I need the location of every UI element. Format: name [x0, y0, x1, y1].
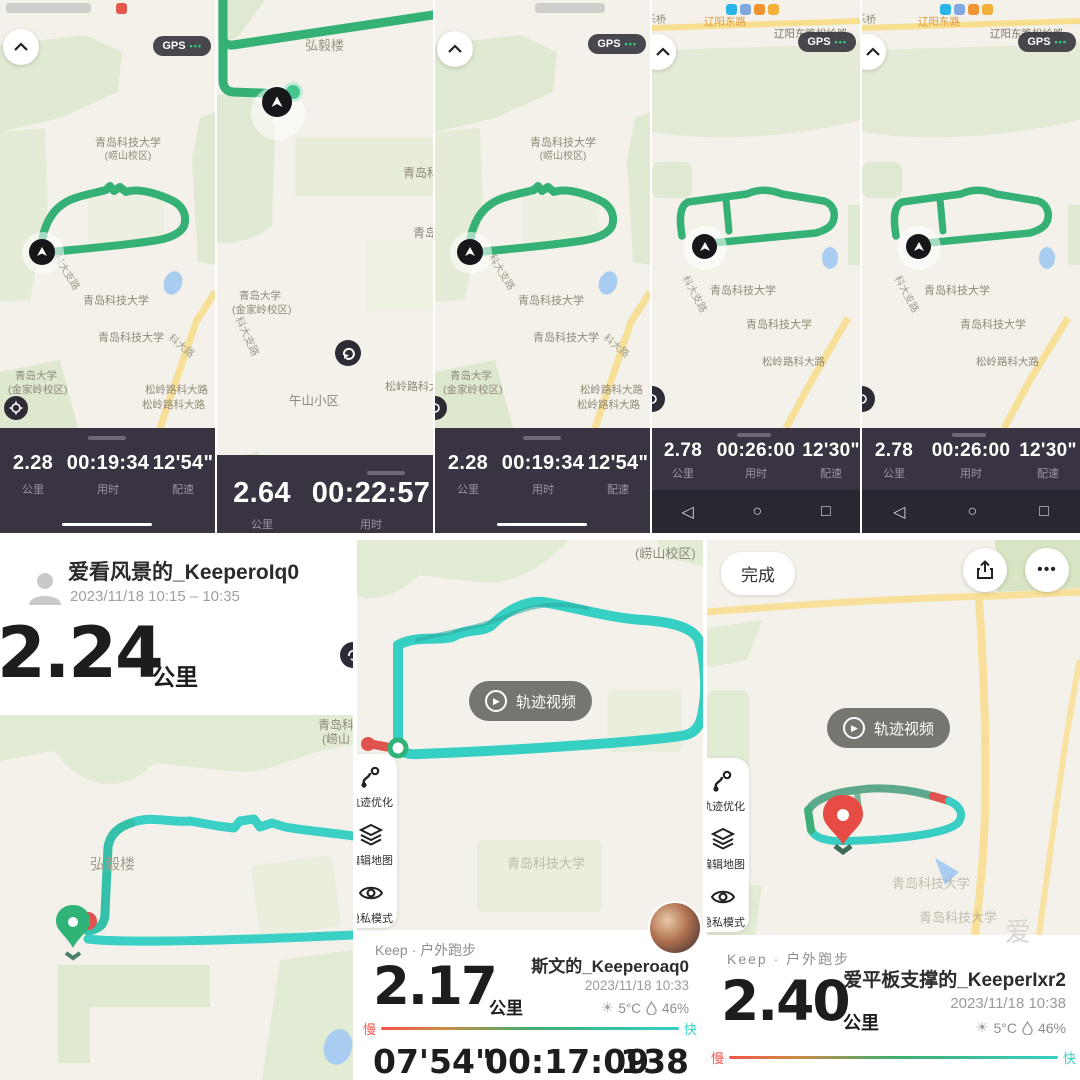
avg-pace-value: 07'54"	[373, 1042, 492, 1080]
user-avatar[interactable]	[648, 901, 702, 955]
location-arrow-marker	[29, 239, 55, 265]
distance-value: 2.40	[721, 969, 849, 1033]
recenter-button[interactable]	[335, 340, 361, 366]
map-label-campus: 青岛科技大学 (崂山校区)	[95, 136, 161, 163]
map-poi-icon	[982, 4, 993, 15]
map-label-university-a: 青岛科技大学	[83, 294, 149, 308]
temperature: 5°C	[618, 1001, 641, 1016]
route-icon	[358, 764, 384, 790]
route-optimize-label: 轨迹优化	[707, 798, 745, 814]
distance-label: 公里	[0, 481, 66, 497]
map-terrain	[0, 0, 215, 428]
route-icon	[710, 768, 736, 794]
summary-card: Keep · 户外跑步 2.40 公里 爱平板支撑的_KeeperIxr2 20…	[707, 935, 1080, 1080]
map-label-corner: (崂山校区)	[635, 546, 696, 563]
duration-value: 00:19:34	[58, 452, 158, 475]
datetime: 2023/11/18 10:38	[950, 995, 1066, 1012]
map-label-university-b: 青岛科技大学	[98, 331, 164, 345]
collapse-chevron-button[interactable]	[437, 31, 473, 67]
distance-unit: 公里	[843, 1009, 879, 1035]
navigation-arrow-icon	[270, 95, 284, 109]
location-arrow-marker	[692, 234, 717, 259]
duration-label: 用时	[493, 481, 593, 497]
map-label-qdu: 青岛大学	[450, 370, 492, 384]
edit-map-label: 编辑地图	[357, 852, 393, 868]
edit-map-button[interactable]: 编辑地图	[357, 822, 401, 868]
status-bar-blur	[6, 3, 91, 13]
compass-icon	[9, 401, 23, 415]
map-label-university-b: 青岛科技大学	[919, 910, 997, 927]
privacy-mode-label: 隐私模式	[707, 914, 745, 930]
humidity-drop-icon	[1022, 1021, 1033, 1035]
stat-duration: 00:19:34 用时	[493, 452, 593, 497]
map-label-qdu-campus: (金家岭校区)	[443, 384, 503, 398]
map-label-road-songling-b: 松岭路科大路	[142, 399, 205, 413]
edit-map-button[interactable]: 编辑地图	[707, 826, 753, 872]
map-label-corner-line2: (崂山	[322, 732, 350, 748]
distance-value: 2.28	[435, 452, 501, 475]
pace-label: 配速	[800, 465, 860, 481]
stats-panel: 2.64 公里 00:22:57 用时	[217, 455, 433, 533]
temperature: 5°C	[993, 1020, 1017, 1036]
map-poi-icon	[940, 4, 951, 15]
map-label-university: 青岛科技大学	[507, 856, 585, 873]
map-label-building: 弘毅楼	[305, 38, 344, 55]
humidity-drop-icon	[646, 1001, 657, 1015]
gps-label: GPS	[597, 38, 620, 50]
status-app-icon	[116, 3, 127, 14]
run-tracking-screen-1[interactable]: GPS ••• 青岛科技大学 (崂山校区) 青岛科技大学 青岛科技大学 青岛大学…	[0, 0, 215, 533]
gps-signal-badge: GPS •••	[798, 32, 856, 52]
duration-value: 00:22:57	[309, 477, 433, 510]
map-poi-icon	[754, 4, 765, 15]
stat-distance: 2.78 公里	[652, 440, 714, 481]
track-video-label: 轨迹视频	[874, 718, 934, 739]
stat-duration: 00:26:00 用时	[922, 440, 1020, 481]
map-label-university-b: 青岛科技大学	[533, 331, 599, 345]
run-tracking-screen-2[interactable]: 弘毅楼 青岛科技大 青岛大 青岛大学 (金家岭校区) 科大支路 午山小区 松岭路…	[217, 0, 433, 533]
chevron-up-icon	[865, 47, 881, 57]
chevron-up-icon	[13, 42, 29, 52]
more-options-button[interactable]: •••	[1025, 548, 1069, 592]
heart-rate-value: 138	[620, 1042, 689, 1080]
map-label-university-a: 青岛科技大学	[924, 284, 990, 298]
duration-value: 00:26:00	[708, 440, 804, 462]
nav-recent-icon[interactable]: □	[1039, 503, 1049, 521]
distance-value: 2.64	[217, 477, 307, 510]
map-poi-icon	[768, 4, 779, 15]
datetime: 2023/11/18 10:33	[585, 978, 689, 993]
map-poi-icon	[740, 4, 751, 15]
collapse-chevron-button[interactable]	[652, 34, 676, 70]
track-video-button[interactable]: ▶ 轨迹视频	[827, 708, 950, 748]
map-label-university-right: 青岛科技大	[403, 166, 433, 182]
gps-label: GPS	[162, 40, 185, 52]
stats-panel: 2.28 公里 00:19:34 用时 12'54" 配速	[0, 428, 215, 533]
distance-value: 2.24	[0, 612, 162, 694]
stat-pace: 12'30" 配速	[1016, 440, 1080, 481]
duration-label: 用时	[58, 481, 158, 497]
layers-icon	[710, 826, 736, 852]
humidity: 46%	[1038, 1020, 1066, 1036]
track-video-button[interactable]: ▶ 轨迹视频	[469, 681, 592, 721]
map-label-road-songling-a: 松岭路科大路	[145, 384, 208, 398]
map-label-campus-line1: 青岛科技大学	[95, 136, 161, 150]
duration-label: 用时	[309, 516, 433, 532]
nav-back-icon[interactable]: ◁	[681, 502, 693, 522]
nav-recent-icon[interactable]: □	[821, 503, 831, 521]
map-label-qdu: 青岛大学	[15, 370, 57, 384]
nav-home-icon[interactable]: ○	[752, 503, 762, 521]
location-arrow-marker	[262, 87, 292, 117]
nav-home-icon[interactable]: ○	[967, 503, 977, 521]
map-label-road-songling-b: 松岭路科大路	[577, 399, 640, 413]
run-tracking-screen-3[interactable]: GPS ••• 青岛科技大学 (崂山校区) 青岛科技大学 青岛科技大学 青岛大学…	[435, 0, 650, 533]
edit-map-label: 编辑地图	[707, 856, 745, 872]
map-terrain	[862, 0, 1080, 428]
route-map[interactable]: 弘毅楼 青岛科 (崂山	[0, 715, 353, 1080]
slow-label: 慢	[711, 1048, 724, 1067]
home-indicator	[62, 523, 152, 526]
pace-label: 配速	[150, 481, 215, 497]
map-label-university-cut: 青岛大	[413, 226, 433, 242]
distance-label: 公里	[435, 481, 501, 497]
map-label-road-kedazhilu: 科大支路	[891, 274, 921, 315]
duration-label: 用时	[922, 465, 1020, 481]
play-icon: ▶	[843, 717, 865, 739]
distance-label: 公里	[217, 516, 307, 532]
drag-handle[interactable]	[737, 433, 771, 437]
rotate-arrow-icon	[346, 648, 353, 662]
play-glyph: ▶	[493, 696, 500, 707]
map-label-university-a: 青岛科技大学	[710, 284, 776, 298]
status-bar-blur	[535, 3, 605, 13]
map-terrain	[652, 0, 860, 428]
sun-icon: ☀	[601, 1000, 613, 1016]
gps-signal-badge: GPS •••	[153, 36, 211, 56]
username: 爱平板支撑的_KeeperIxr2	[843, 965, 1066, 992]
nav-back-icon[interactable]: ◁	[893, 502, 905, 522]
play-icon: ▶	[485, 690, 507, 712]
chevron-up-icon	[447, 44, 463, 54]
distance-label: 公里	[652, 465, 714, 481]
chevron-up-icon	[655, 47, 671, 57]
duration-label: 用时	[708, 465, 804, 481]
pace-value: 12'30"	[1016, 440, 1080, 462]
map-poi-icon	[968, 4, 979, 15]
map-label-qdu: 青岛大学	[239, 290, 281, 304]
navigation-arrow-icon	[36, 246, 48, 258]
stats-panel: 2.28 公里 00:19:34 用时 12'54" 配速	[435, 428, 650, 533]
summary-card: Keep · 户外跑步 2.17 公里 斯文的_Keeperoaq0 2023/…	[357, 930, 703, 1080]
map-label-road-top: 辽阳东路	[918, 16, 960, 30]
navigation-arrow-icon	[464, 246, 476, 258]
app-activity-line: Keep · 户外跑步	[727, 949, 850, 969]
keep-run-collage: GPS ••• 青岛科技大学 (崂山校区) 青岛科技大学 青岛科技大学 青岛大学…	[0, 0, 1080, 1080]
distance-unit: 公里	[152, 658, 198, 692]
stat-distance: 2.78 公里	[862, 440, 926, 481]
pace-value: 12'54"	[150, 452, 215, 475]
map-label-building: 弘毅楼	[90, 855, 135, 875]
map-label-road-songling: 松岭路科大路	[762, 356, 825, 370]
map-label-campus-line2: (崂山校区)	[530, 150, 596, 163]
map-label-campus: 青岛科技大学 (崂山校区)	[530, 136, 596, 163]
gps-signal-badge: GPS •••	[588, 34, 646, 54]
distance-label: 公里	[862, 465, 926, 481]
person-avatar-icon	[25, 568, 65, 608]
map-label-university-b: 青岛科技大学	[746, 318, 812, 332]
compass-icon	[862, 392, 869, 406]
stat-distance: 2.64 公里	[217, 477, 307, 532]
map-terrain	[435, 0, 650, 428]
drag-handle[interactable]	[367, 471, 405, 475]
pace-gradient-bar	[729, 1056, 1058, 1059]
track-video-label: 轨迹视频	[516, 691, 576, 712]
pace-value: 12'54"	[585, 452, 650, 475]
collapse-chevron-button[interactable]	[3, 29, 39, 65]
map-label-left-road: 乐桥	[652, 14, 666, 27]
drag-handle[interactable]	[88, 436, 126, 440]
map-poi-icon	[954, 4, 965, 15]
map-label-road-kedalu: 科大路	[165, 332, 196, 361]
recenter-button[interactable]	[340, 642, 353, 668]
eye-icon	[710, 884, 736, 910]
map-label-road-songling-a: 松岭路科大路	[580, 384, 643, 398]
compass-icon	[435, 401, 442, 415]
map-label-road-songling: 松岭路科大路	[976, 356, 1039, 370]
map-terrain	[0, 715, 353, 1080]
map-label-university-a: 青岛科技大学	[892, 876, 970, 893]
stats-panel: 2.78 公里 00:26:00 用时 12'30" 配速	[652, 428, 860, 490]
collapse-chevron-button[interactable]	[862, 34, 886, 70]
weather-row: ☀ 5°C 46%	[601, 1000, 689, 1016]
distance-unit: 公里	[489, 994, 523, 1019]
map-label-road-top: 辽阳东路	[704, 16, 746, 30]
compass-button[interactable]	[4, 396, 28, 420]
map-label-left-road: 乐桥	[862, 14, 876, 27]
map-label-village: 午山小区	[289, 393, 339, 409]
stat-pace: 12'30" 配速	[800, 440, 860, 481]
fast-label: 快	[1063, 1048, 1076, 1067]
pace-value: 12'30"	[800, 440, 860, 462]
play-glyph: ▶	[851, 723, 858, 734]
map-label-road-kedazhilu: 科大支路	[679, 274, 709, 315]
pace-label: 配速	[585, 481, 650, 497]
run-tracking-screen-4[interactable]: 乐桥 辽阳东路 辽阳东路松岭路 GPS ••• 青岛科技大学 青岛科技大学 松岭…	[652, 0, 860, 533]
stat-duration: 00:22:57 用时	[309, 477, 433, 532]
rotate-arrow-icon	[340, 345, 356, 361]
gps-signal-dots: •••	[190, 42, 202, 51]
stat-distance: 2.28 公里	[0, 452, 66, 497]
username: 爱看风景的_KeeperoIq0	[68, 556, 299, 586]
pace-label: 配速	[1016, 465, 1080, 481]
map-poi-icon	[726, 4, 737, 15]
compass-button[interactable]	[435, 396, 447, 420]
watermark: 爱	[1005, 912, 1031, 949]
share-button[interactable]	[963, 548, 1007, 592]
android-nav-bar: ◁ ○ □	[652, 490, 860, 533]
done-button[interactable]: 完成	[721, 552, 795, 595]
android-nav-bar: ◁ ○ □	[862, 490, 1080, 533]
sun-icon: ☀	[976, 1019, 989, 1036]
location-arrow-marker	[457, 239, 483, 265]
stats-panel: 2.78 公里 00:26:00 用时 12'30" 配速	[862, 428, 1080, 490]
stat-duration: 00:19:34 用时	[58, 452, 158, 497]
stat-pace: 12'54" 配速	[150, 452, 215, 497]
home-indicator	[497, 523, 587, 526]
compass-button[interactable]	[862, 386, 875, 412]
gps-label: GPS	[807, 36, 830, 48]
distance-value: 2.17	[373, 956, 496, 1017]
humidity: 46%	[662, 1001, 689, 1016]
gps-signal-dots: •••	[625, 40, 637, 49]
map-label-road-songling: 松岭路科大路	[385, 380, 433, 394]
slow-label: 慢	[363, 1019, 376, 1038]
date-range: 2023/11/18 10:15 – 10:35	[70, 588, 240, 605]
pace-gradient-bar	[381, 1027, 679, 1030]
stat-pace: 12'54" 配速	[585, 452, 650, 497]
map-label-university-b: 青岛科技大学	[960, 318, 1026, 332]
done-label: 完成	[741, 566, 775, 585]
eye-icon	[358, 880, 384, 906]
map-label-campus-line1: 青岛科技大学	[530, 136, 596, 150]
gps-signal-dots: •••	[835, 38, 847, 47]
run-detail-screen-1[interactable]: (崂山校区) 青岛科技大学 ▶ 轨迹视频 轨迹优化 编辑地图 隐私模式 Keep…	[357, 540, 703, 1080]
gps-signal-dots: •••	[1055, 38, 1067, 47]
route-optimize-button[interactable]: 轨迹优化	[357, 764, 401, 810]
privacy-mode-label: 隐私模式	[357, 910, 393, 926]
share-icon	[975, 560, 995, 580]
privacy-mode-button[interactable]: 隐私模式	[357, 880, 401, 926]
run-tracking-screen-5[interactable]: 乐桥 辽阳东路 辽阳东路松岭路 GPS ••• 青岛科技大学 青岛科技大学 松岭…	[862, 0, 1080, 533]
location-arrow-marker	[906, 234, 931, 259]
username: 斯文的_Keeperoaq0	[531, 952, 689, 977]
stat-distance: 2.28 公里	[435, 452, 501, 497]
drag-handle[interactable]	[523, 436, 561, 440]
more-icon: •••	[1037, 561, 1057, 579]
navigation-arrow-icon	[699, 241, 711, 253]
run-detail-screen-2[interactable]: 完成 ••• ▶ 轨迹视频 轨迹优化 编辑地图 隐私模式 青岛科技大学 青岛科技…	[707, 540, 1080, 1080]
route-optimize-label: 轨迹优化	[357, 794, 393, 810]
distance-value: 2.78	[862, 440, 926, 462]
gps-signal-badge: GPS •••	[1018, 32, 1076, 52]
duration-value: 00:19:34	[493, 452, 593, 475]
route-optimize-button[interactable]: 轨迹优化	[707, 768, 753, 814]
layers-icon	[358, 822, 384, 848]
compass-button[interactable]	[652, 386, 665, 412]
stat-duration: 00:26:00 用时	[708, 440, 804, 481]
map-label-road-kedalu: 科大路	[600, 332, 631, 361]
privacy-mode-button[interactable]: 隐私模式	[707, 884, 753, 930]
map-label-university-a: 青岛科技大学	[518, 294, 584, 308]
fast-label: 快	[684, 1019, 697, 1038]
compass-icon	[652, 392, 659, 406]
duration-value: 00:26:00	[922, 440, 1020, 462]
map-label-campus-line2: (崂山校区)	[95, 150, 161, 163]
navigation-arrow-icon	[913, 241, 925, 253]
gps-label: GPS	[1027, 36, 1050, 48]
drag-handle[interactable]	[952, 433, 986, 437]
run-summary-card-1[interactable]: 爱看风景的_KeeperoIq0 2023/11/18 10:15 – 10:3…	[0, 540, 353, 1080]
weather-row: ☀ 5°C 46%	[976, 1019, 1066, 1036]
map-label-road-kedazhilu: 科大支路	[231, 315, 261, 359]
distance-value: 2.28	[0, 452, 66, 475]
distance-value: 2.78	[652, 440, 714, 462]
